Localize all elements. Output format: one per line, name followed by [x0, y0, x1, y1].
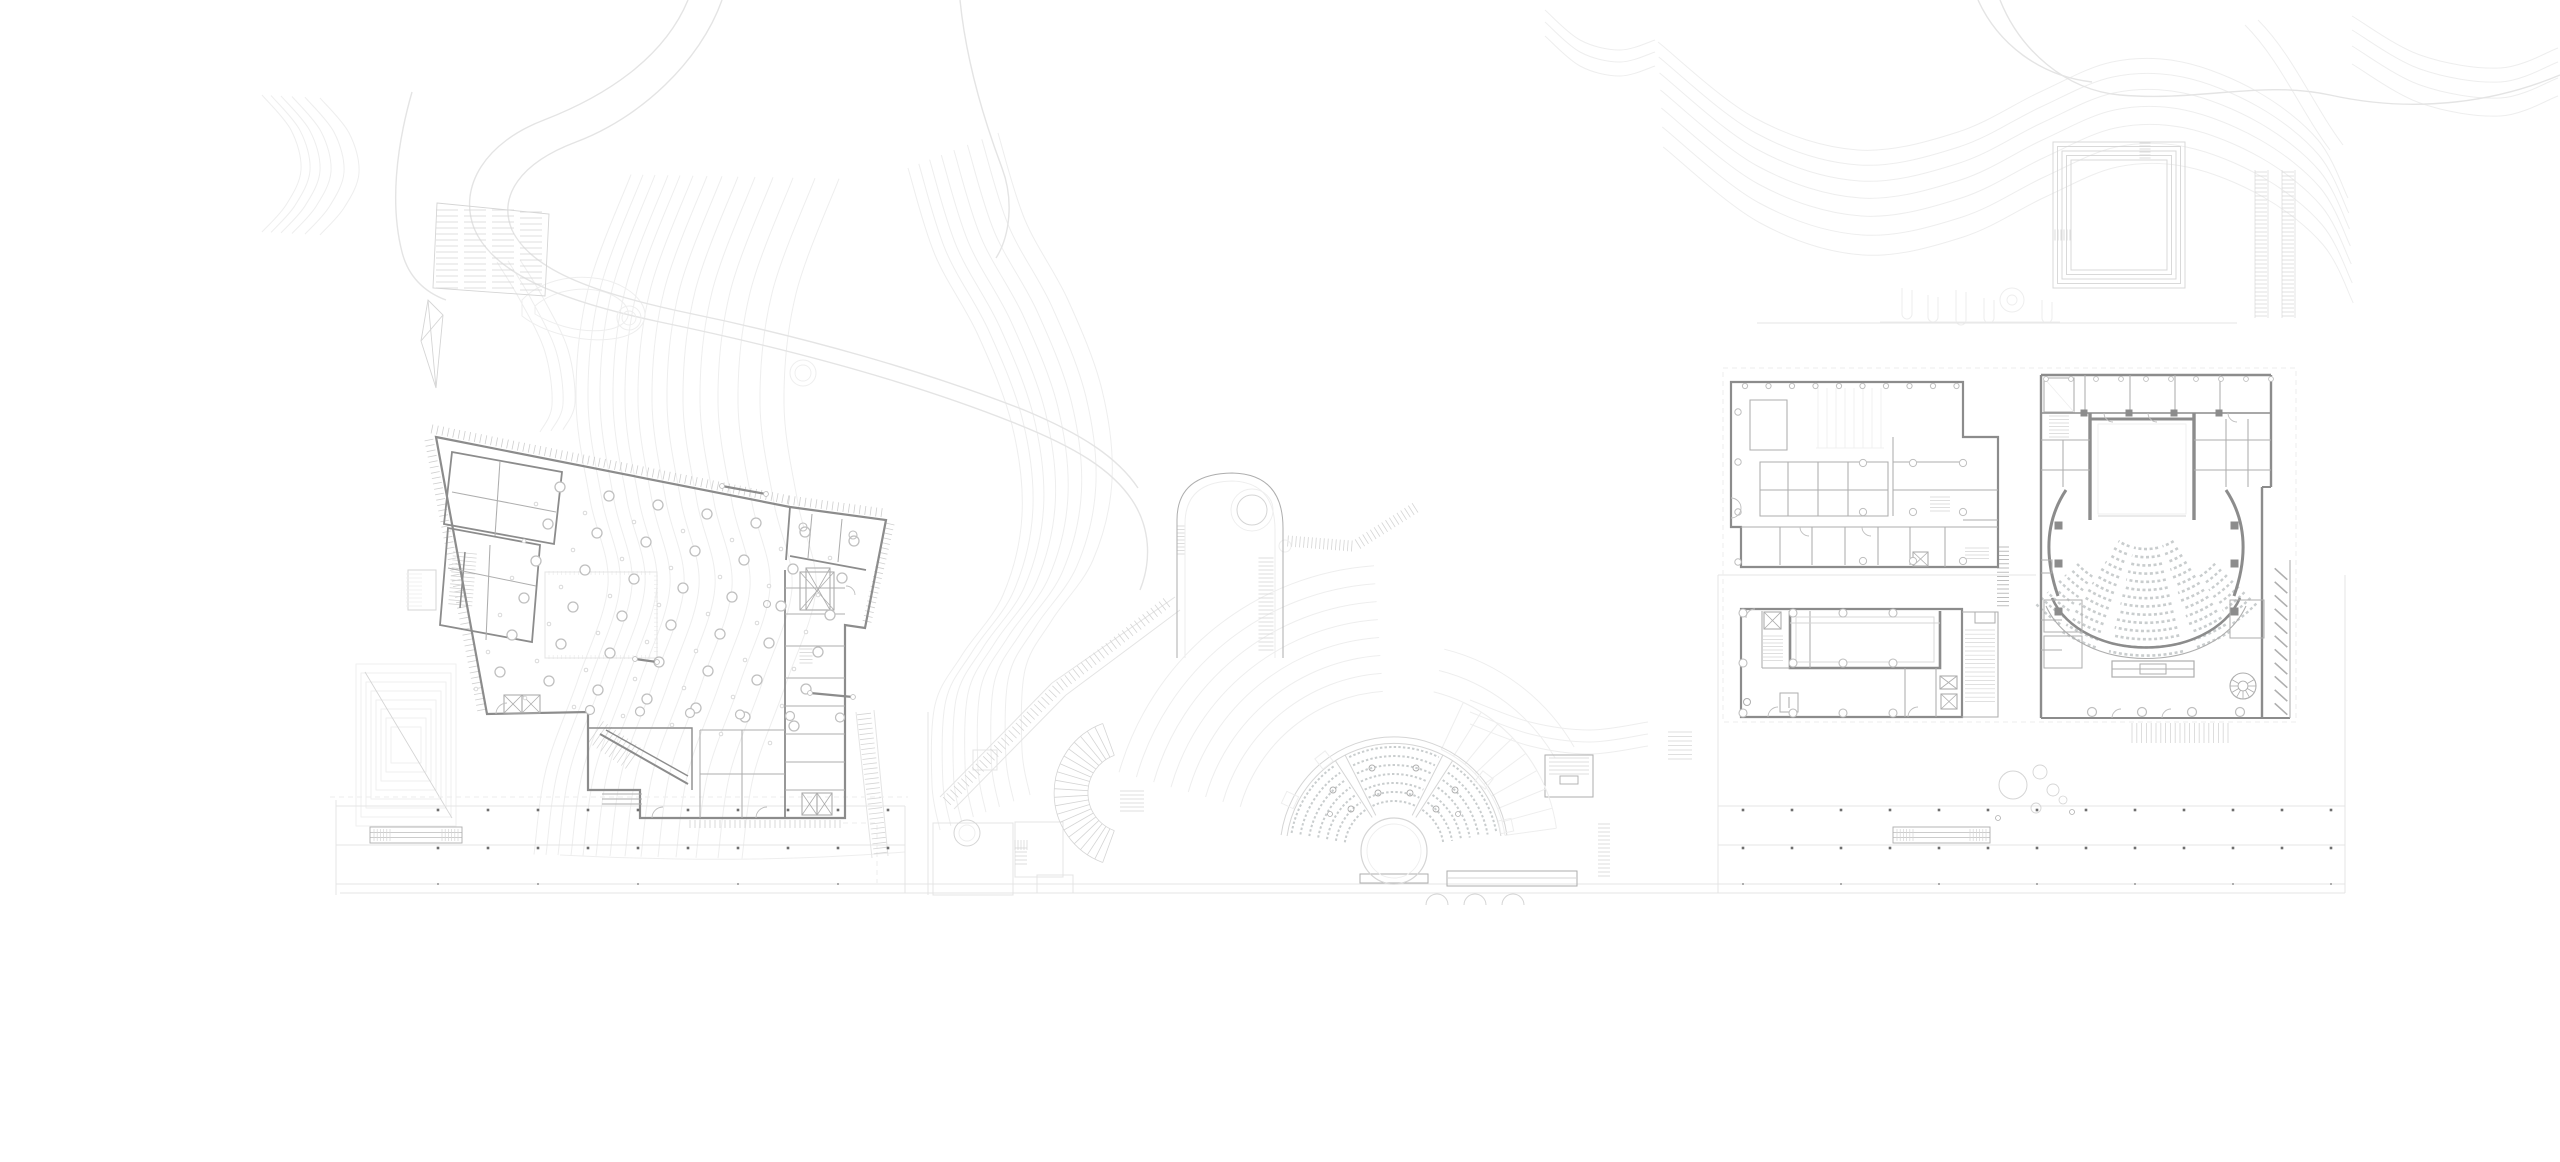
double-bars: [633, 484, 856, 700]
theater-seating: [2036, 541, 2257, 655]
amphitheater-seats: [1281, 737, 1507, 842]
fan-stairs: [1054, 702, 1556, 862]
cores: [504, 552, 1957, 815]
column-grids: [474, 377, 2273, 745]
walls-right: [1731, 375, 2290, 718]
plaza-lines: [336, 170, 2345, 895]
site-plan-canvas: [0, 0, 2560, 1162]
spiral-stair: [2230, 673, 2256, 699]
amphitheater-details: [1426, 878, 1577, 905]
parking-and-kite: [421, 203, 549, 388]
partitions: [448, 375, 2290, 818]
amphitheater-terraces: [1119, 566, 1574, 807]
terrace-diag: [365, 672, 452, 818]
site-plan-page: [0, 0, 2560, 1162]
walls-left: [436, 437, 886, 818]
inner-faint: [545, 410, 2264, 677]
plaza-rects: [408, 570, 1995, 895]
louvers-a: [1816, 378, 2074, 448]
inner-faint-lines: [1790, 516, 2186, 623]
roads: [396, 0, 2560, 590]
